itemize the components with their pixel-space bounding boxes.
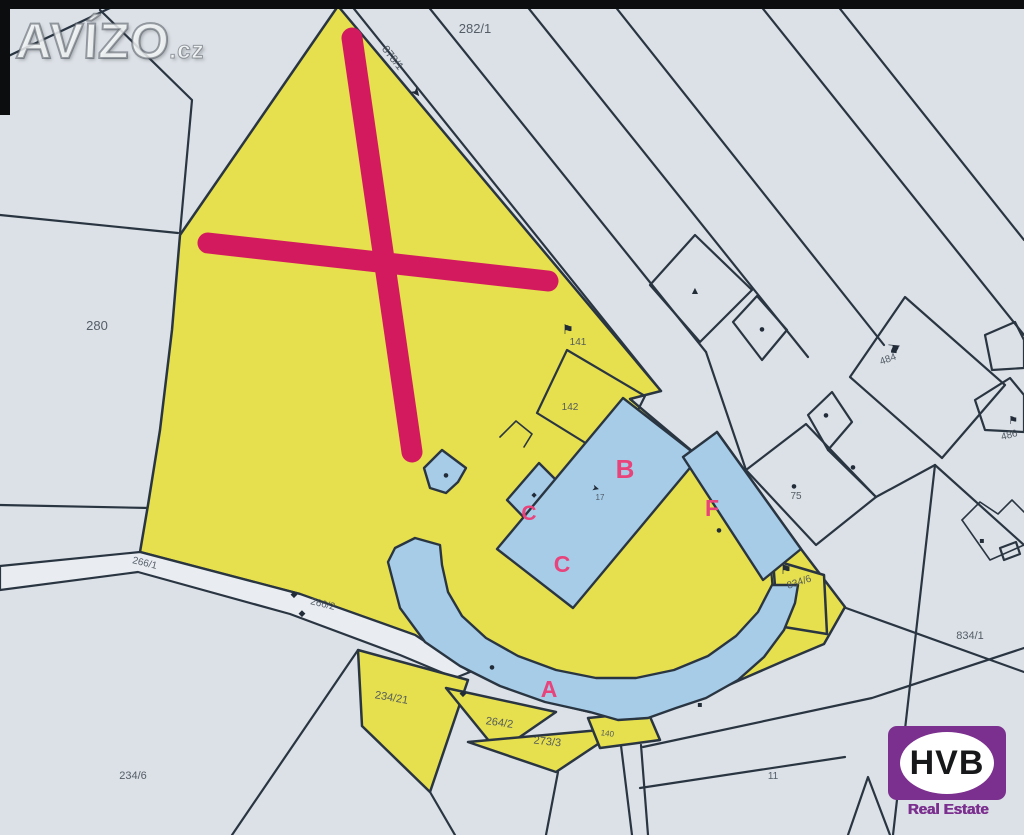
parcel-label: 234/6 xyxy=(119,770,147,782)
flag-symbol: ⚑ xyxy=(1008,414,1018,427)
boundary-diamond: ◆ xyxy=(460,689,467,699)
hvb-subtitle: Real Estate xyxy=(888,801,1008,818)
parcel-label: 75 xyxy=(790,491,802,502)
hvb-ellipse: HVB xyxy=(900,732,994,794)
parcel-label: 11 xyxy=(768,771,779,782)
flag-symbol: ⚑ xyxy=(780,563,792,578)
cadastral-map: ⚑⚑⚑⚑➤●●●●●●●▲◆◆◆◆➤▪▪ 282/1878/1280141142… xyxy=(0,0,1024,835)
building-letter: A xyxy=(541,676,558,702)
boundary-diamond: ◆ xyxy=(531,491,537,499)
avizo-watermark-text: AVÍZO xyxy=(15,13,172,69)
hvb-logo: HVB Real Estate xyxy=(888,726,1008,818)
parcel-label: 140 xyxy=(600,728,615,739)
survey-dot: ● xyxy=(716,527,721,534)
hvb-name: HVB xyxy=(910,744,985,783)
parcel-label: 17 xyxy=(596,493,605,502)
square-dot: ▪ xyxy=(979,536,984,545)
building-letter: C xyxy=(554,551,571,577)
boundary-diamond: ◆ xyxy=(299,609,306,619)
survey-dot: ● xyxy=(823,412,828,419)
avizo-watermark: AVÍZO.cz xyxy=(14,12,206,70)
flag-symbol: ⚑ xyxy=(562,323,574,338)
building-letter: B xyxy=(616,454,635,484)
scan-edge-top xyxy=(0,0,1024,9)
survey-dot: ● xyxy=(850,464,855,471)
scan-edge-left xyxy=(0,0,10,115)
boundary-diamond: ◆ xyxy=(291,590,298,600)
parcel-label: 141 xyxy=(570,337,587,348)
parcel-label: 834/1 xyxy=(956,630,984,642)
hvb-badge: HVB xyxy=(888,726,1006,800)
survey-dot: ● xyxy=(759,326,764,333)
building-letter: C xyxy=(521,502,536,525)
survey-dot: ● xyxy=(791,483,796,490)
cadastral-map-screenshot: ⚑⚑⚑⚑➤●●●●●●●▲◆◆◆◆➤▪▪ 282/1878/1280141142… xyxy=(0,0,1024,835)
parcel-label: 280 xyxy=(86,318,108,333)
survey-dot: ● xyxy=(443,472,448,479)
parcel-label: 282/1 xyxy=(459,21,492,36)
avizo-watermark-tld: .cz xyxy=(169,37,205,64)
square-dot: ▪ xyxy=(697,700,702,709)
triangle-mark: ▲ xyxy=(692,286,699,295)
parcel-label: 142 xyxy=(562,402,579,413)
survey-dot: ● xyxy=(489,664,494,671)
building-letter: F xyxy=(705,495,719,521)
